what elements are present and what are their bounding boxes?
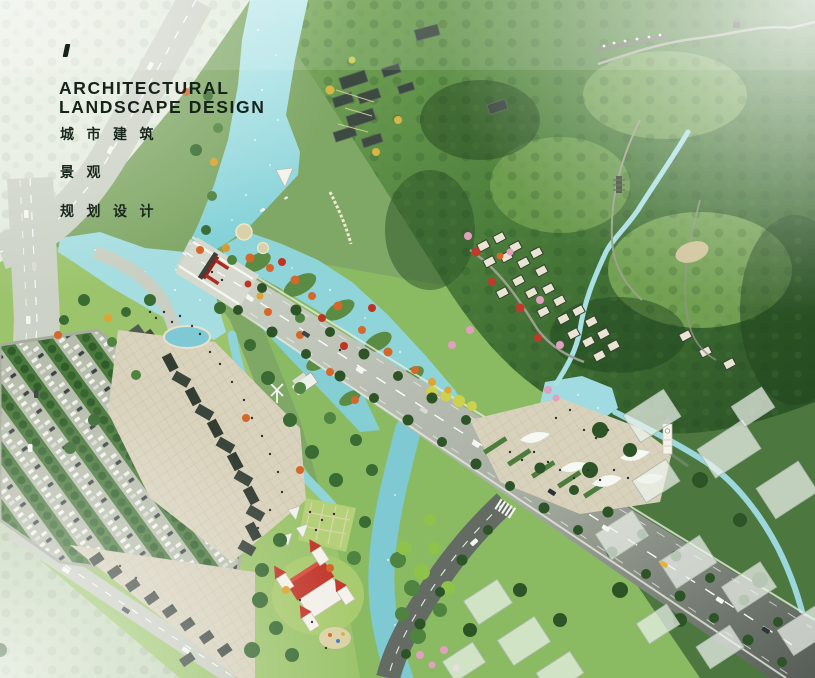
- chinese-line-1: 城市建筑: [60, 124, 166, 144]
- title-line-1: ARCHITECTURAL: [59, 79, 230, 98]
- title-line-2: LANDSCAPE DESIGN: [59, 98, 265, 117]
- chinese-line-2: 景观: [60, 162, 113, 182]
- masterplan-rendering: ARCHITECTURAL LANDSCAPE DESIGN 城市建筑 景观 规…: [0, 0, 815, 678]
- chinese-line-3: 规划设计: [60, 201, 166, 221]
